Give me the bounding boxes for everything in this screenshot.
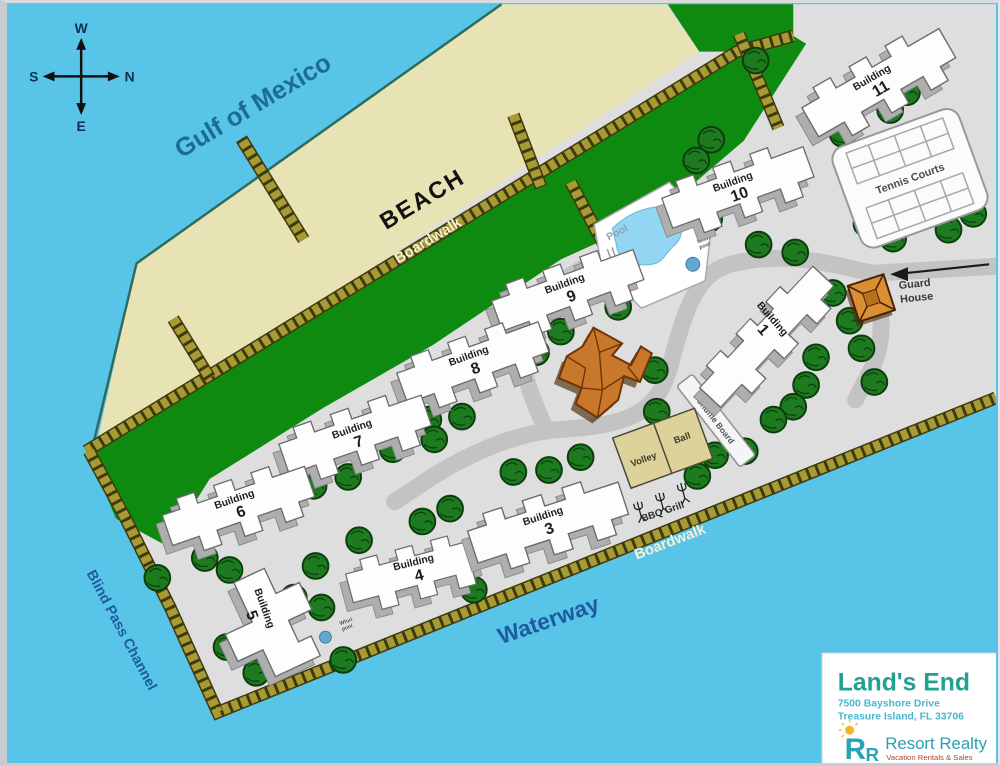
tree-icon — [501, 459, 527, 485]
tree-icon — [410, 509, 436, 535]
tree-icon — [568, 444, 594, 470]
address-line-1: 7500 Bayshore Drive — [838, 698, 940, 709]
tree-icon — [683, 148, 709, 174]
tree-icon — [803, 344, 829, 370]
brand-name: Resort Realty — [885, 734, 987, 753]
brand-tagline: Vacation Rentals & Sales — [886, 753, 972, 762]
map-canvas: Tennis Courts Pool Whirl pool Guard Hous… — [7, 3, 996, 763]
tree-icon — [861, 369, 887, 395]
address-line-2: Treasure Island, FL 33706 — [838, 711, 964, 722]
tree-icon — [536, 457, 562, 483]
tree-icon — [849, 336, 875, 362]
tree-icon — [782, 240, 808, 266]
resort-title: Land's End — [838, 670, 970, 697]
tree-icon — [746, 232, 772, 258]
guard-house-label: Guard House — [898, 277, 934, 306]
tree-icon — [743, 48, 769, 74]
compass-east: E — [77, 118, 86, 134]
tree-icon — [303, 553, 329, 579]
compass-north: N — [125, 68, 135, 84]
monogram-r-small: R — [865, 744, 879, 763]
tree-icon — [144, 565, 170, 591]
resort-map: Tennis Courts Pool Whirl pool Guard Hous… — [0, 0, 1000, 766]
info-box: Land's End 7500 Bayshore Drive Treasure … — [822, 653, 996, 763]
tree-icon — [217, 557, 243, 583]
tree-icon — [346, 527, 372, 553]
monogram-r-large: R — [845, 733, 866, 763]
tree-icon — [330, 647, 356, 673]
tree-icon — [421, 427, 447, 453]
whirlpool-2 — [320, 631, 332, 643]
compass-west: W — [75, 20, 89, 36]
tree-icon — [309, 595, 335, 621]
tree-icon — [449, 404, 475, 430]
tree-icon — [761, 407, 787, 433]
compass-south: S — [29, 68, 38, 84]
tree-icon — [437, 496, 463, 522]
